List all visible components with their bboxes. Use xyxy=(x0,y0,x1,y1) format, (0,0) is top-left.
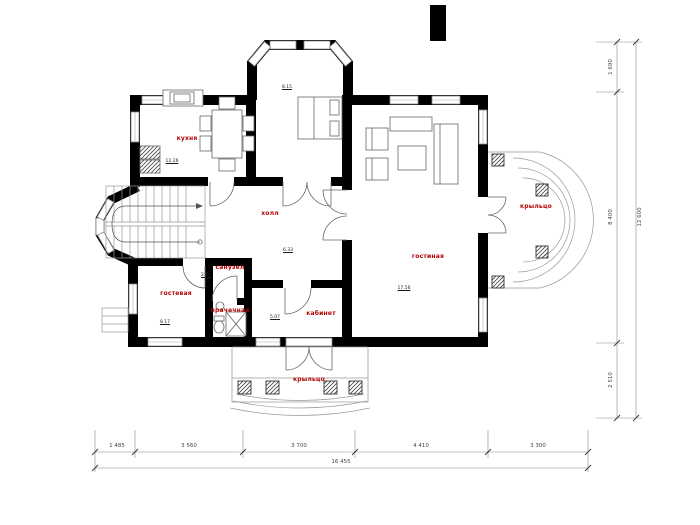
dim-bottom-3: 3 700 xyxy=(277,443,321,449)
chimney xyxy=(430,5,446,41)
entrance-opening xyxy=(286,338,332,346)
chair xyxy=(200,116,211,131)
living-room-furniture xyxy=(366,117,458,184)
armchair xyxy=(366,158,388,180)
chair xyxy=(243,116,254,131)
bay-window-left xyxy=(96,187,138,264)
floor-plan-canvas: кухня холл гостиная гостевая кабинет сан… xyxy=(0,0,700,525)
bay-window-top xyxy=(248,41,351,100)
coffee-table xyxy=(398,146,426,170)
dim-right-1: 1 690 xyxy=(608,45,614,89)
dining-table xyxy=(212,110,242,158)
pillow xyxy=(330,121,339,136)
area-kitchen: 12.26 xyxy=(157,159,187,164)
porch-column xyxy=(536,184,548,196)
area-wc: 2.60 xyxy=(191,273,221,278)
room-label-guest: гостевая xyxy=(144,290,208,297)
sofa xyxy=(434,124,458,184)
tv-stand xyxy=(390,117,432,131)
toilet-tank xyxy=(214,316,224,321)
side-step xyxy=(102,308,128,332)
area-study: 5.07 xyxy=(260,315,290,320)
porch-step xyxy=(236,394,364,401)
bedroom-furniture xyxy=(298,97,342,139)
porch-step xyxy=(513,158,575,282)
area-guest: 8.17 xyxy=(150,320,180,325)
room-label-porch-right: крыльцо xyxy=(504,203,568,210)
area-bedroom: 8.15 xyxy=(272,85,302,90)
room-label-living: гостиная xyxy=(396,253,460,260)
dim-bottom-5: 3 300 xyxy=(516,443,560,449)
porch-column xyxy=(238,381,251,394)
dim-bottom-1: 1 485 xyxy=(95,443,139,449)
stair-direction-arrow xyxy=(112,203,203,244)
porch-column xyxy=(492,276,504,288)
dim-bottom-2: 3 560 xyxy=(167,443,211,449)
porch-column xyxy=(349,381,362,394)
dim-bottom-total: 16 455 xyxy=(319,459,363,465)
room-label-porch-bottom: крыльцо xyxy=(277,376,341,383)
dim-bottom-4: 4 410 xyxy=(399,443,443,449)
area-hall: 6.33 xyxy=(273,248,303,253)
chair xyxy=(219,97,235,109)
room-label-wc: санузел xyxy=(198,264,262,271)
dim-right-total: 12 600 xyxy=(637,195,643,239)
armchair xyxy=(366,128,388,150)
pillow xyxy=(330,100,339,115)
room-label-kitchen: кухня xyxy=(155,135,219,142)
porch-step xyxy=(230,408,370,416)
porch-column xyxy=(536,246,548,258)
area-living: 17.56 xyxy=(389,286,419,291)
porch-column xyxy=(492,154,504,166)
right-porch xyxy=(488,152,593,288)
room-label-study: кабинет xyxy=(289,310,353,317)
vent-shaft xyxy=(140,146,160,159)
room-label-laundry: прачечная xyxy=(198,307,262,314)
chair xyxy=(243,136,254,151)
chair xyxy=(219,159,235,171)
dim-right-3: 2 510 xyxy=(608,358,614,402)
toilet xyxy=(214,321,224,333)
dim-right-2: 8 400 xyxy=(608,195,614,239)
room-label-hall: холл xyxy=(238,210,302,217)
